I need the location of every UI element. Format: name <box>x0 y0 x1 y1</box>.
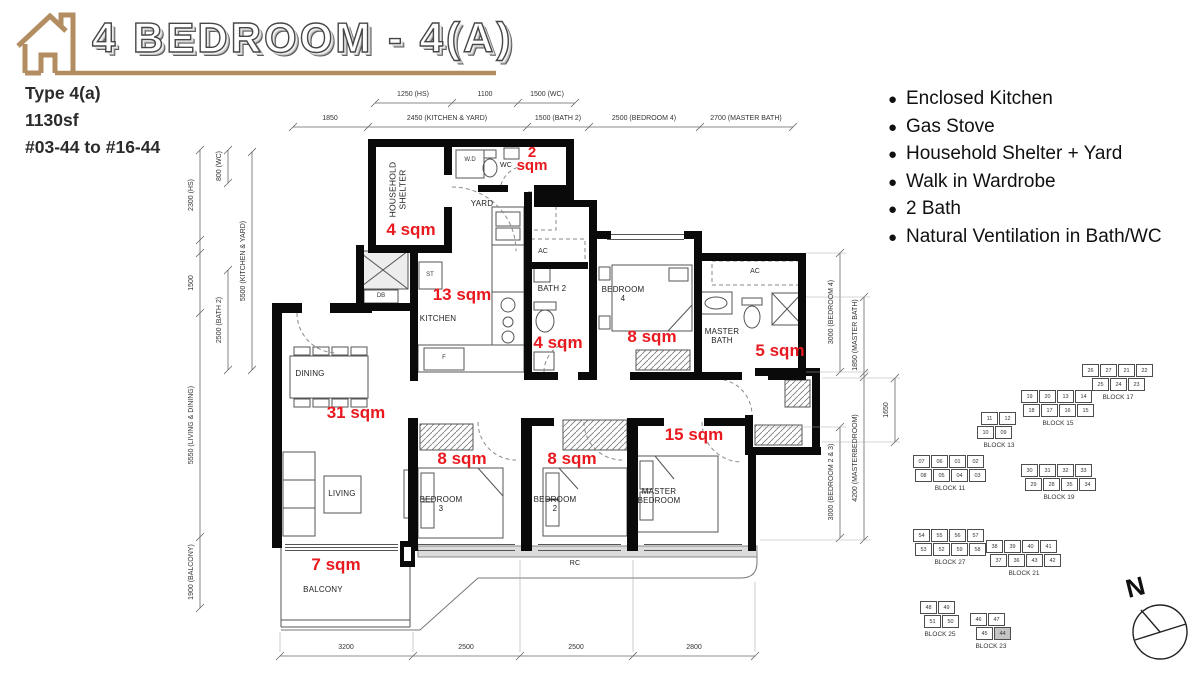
dim-right: 1650 <box>883 355 893 465</box>
room-label-bedroom2: BEDROOM 2 <box>532 496 578 514</box>
dim-top: 1500 (WC) <box>502 91 592 98</box>
dim-top: 2700 (MASTER BATH) <box>701 115 791 122</box>
dim-bottom: 2500 <box>421 644 511 651</box>
area-label-kitchen: 13 sqm <box>424 285 500 305</box>
dim-left: 2500 (BATH 2) <box>216 265 226 375</box>
area-label-balcony: 7 sqm <box>304 555 368 575</box>
area-label-bath2: 4 sqm <box>526 333 590 353</box>
area-label-household-shelter: 4 sqm <box>376 220 446 240</box>
fixture-label-storage: ST <box>420 272 440 279</box>
area-label-master-bath: 5 sqm <box>748 341 812 361</box>
room-label-master-bath: MASTER BATH <box>700 328 744 346</box>
dim-top: 2500 (BEDROOM 4) <box>599 115 689 122</box>
balcony-post-inset <box>404 547 411 561</box>
area-label-living-dining: 31 sqm <box>318 403 394 423</box>
dim-bottom: 2800 <box>649 644 739 651</box>
floorplan-page: 4 BEDROOM - 4(A) Type 4(a) 1130sf #03-44… <box>0 0 1200 675</box>
dim-bottom: 3200 <box>301 644 391 651</box>
fixture-label-db: DB <box>366 293 396 300</box>
room-label-master-bedroom: MASTER BEDROOM <box>634 488 684 506</box>
dim-top: 1850 <box>285 115 375 122</box>
fixture-label-ac-master: AC <box>740 268 770 276</box>
room-label-living: LIVING <box>320 490 364 499</box>
dim-right: 3000 (BEDROOM 2 & 3) <box>828 427 838 537</box>
dim-left: 1900 (BALCONY) <box>188 517 198 627</box>
dim-top: 1500 (BATH 2) <box>513 115 603 122</box>
compass: N <box>1112 570 1200 670</box>
dim-bottom: 2500 <box>531 644 621 651</box>
fixture-label-washer-dryer: W.D <box>456 157 484 164</box>
area-label-bedroom3: 8 sqm <box>430 449 494 469</box>
room-label-bedroom4: BEDROOM 4 <box>600 286 646 304</box>
area-label-wc: 2 sqm <box>514 146 550 172</box>
room-label-rc: RC <box>560 560 590 568</box>
room-label-balcony: BALCONY <box>295 586 351 595</box>
fixture-label-fridge: F <box>434 355 454 362</box>
dim-right: 4200 (MASTERBEDROOM) <box>852 403 862 513</box>
floorplan-drawing <box>0 0 1200 675</box>
dim-left: 5550 (LIVING & DINING) <box>188 370 198 480</box>
area-label-master-bedroom: 15 sqm <box>658 425 730 445</box>
fixture-label-ac-bath2: AC <box>528 248 558 256</box>
room-label-dining: DINING <box>288 370 332 379</box>
room-label-kitchen: KITCHEN <box>408 315 468 324</box>
dim-left: 5500 (KITCHEN & YARD) <box>240 206 250 316</box>
dim-right: 1850 (MASTER BATH) <box>852 280 862 390</box>
room-label-bath2: BATH 2 <box>530 285 574 294</box>
dim-left: 1500 <box>188 228 198 338</box>
area-label-bedroom4: 8 sqm <box>620 327 684 347</box>
dim-top: 2450 (KITCHEN & YARD) <box>395 115 499 122</box>
area-label-bedroom2: 8 sqm <box>540 449 604 469</box>
room-label-yard: YARD <box>460 200 504 209</box>
dim-right: 3000 (BEDROOM 4) <box>828 257 838 367</box>
room-label-bedroom3: BEDROOM 3 <box>418 496 464 514</box>
dim-left: 800 (WC) <box>216 111 226 221</box>
